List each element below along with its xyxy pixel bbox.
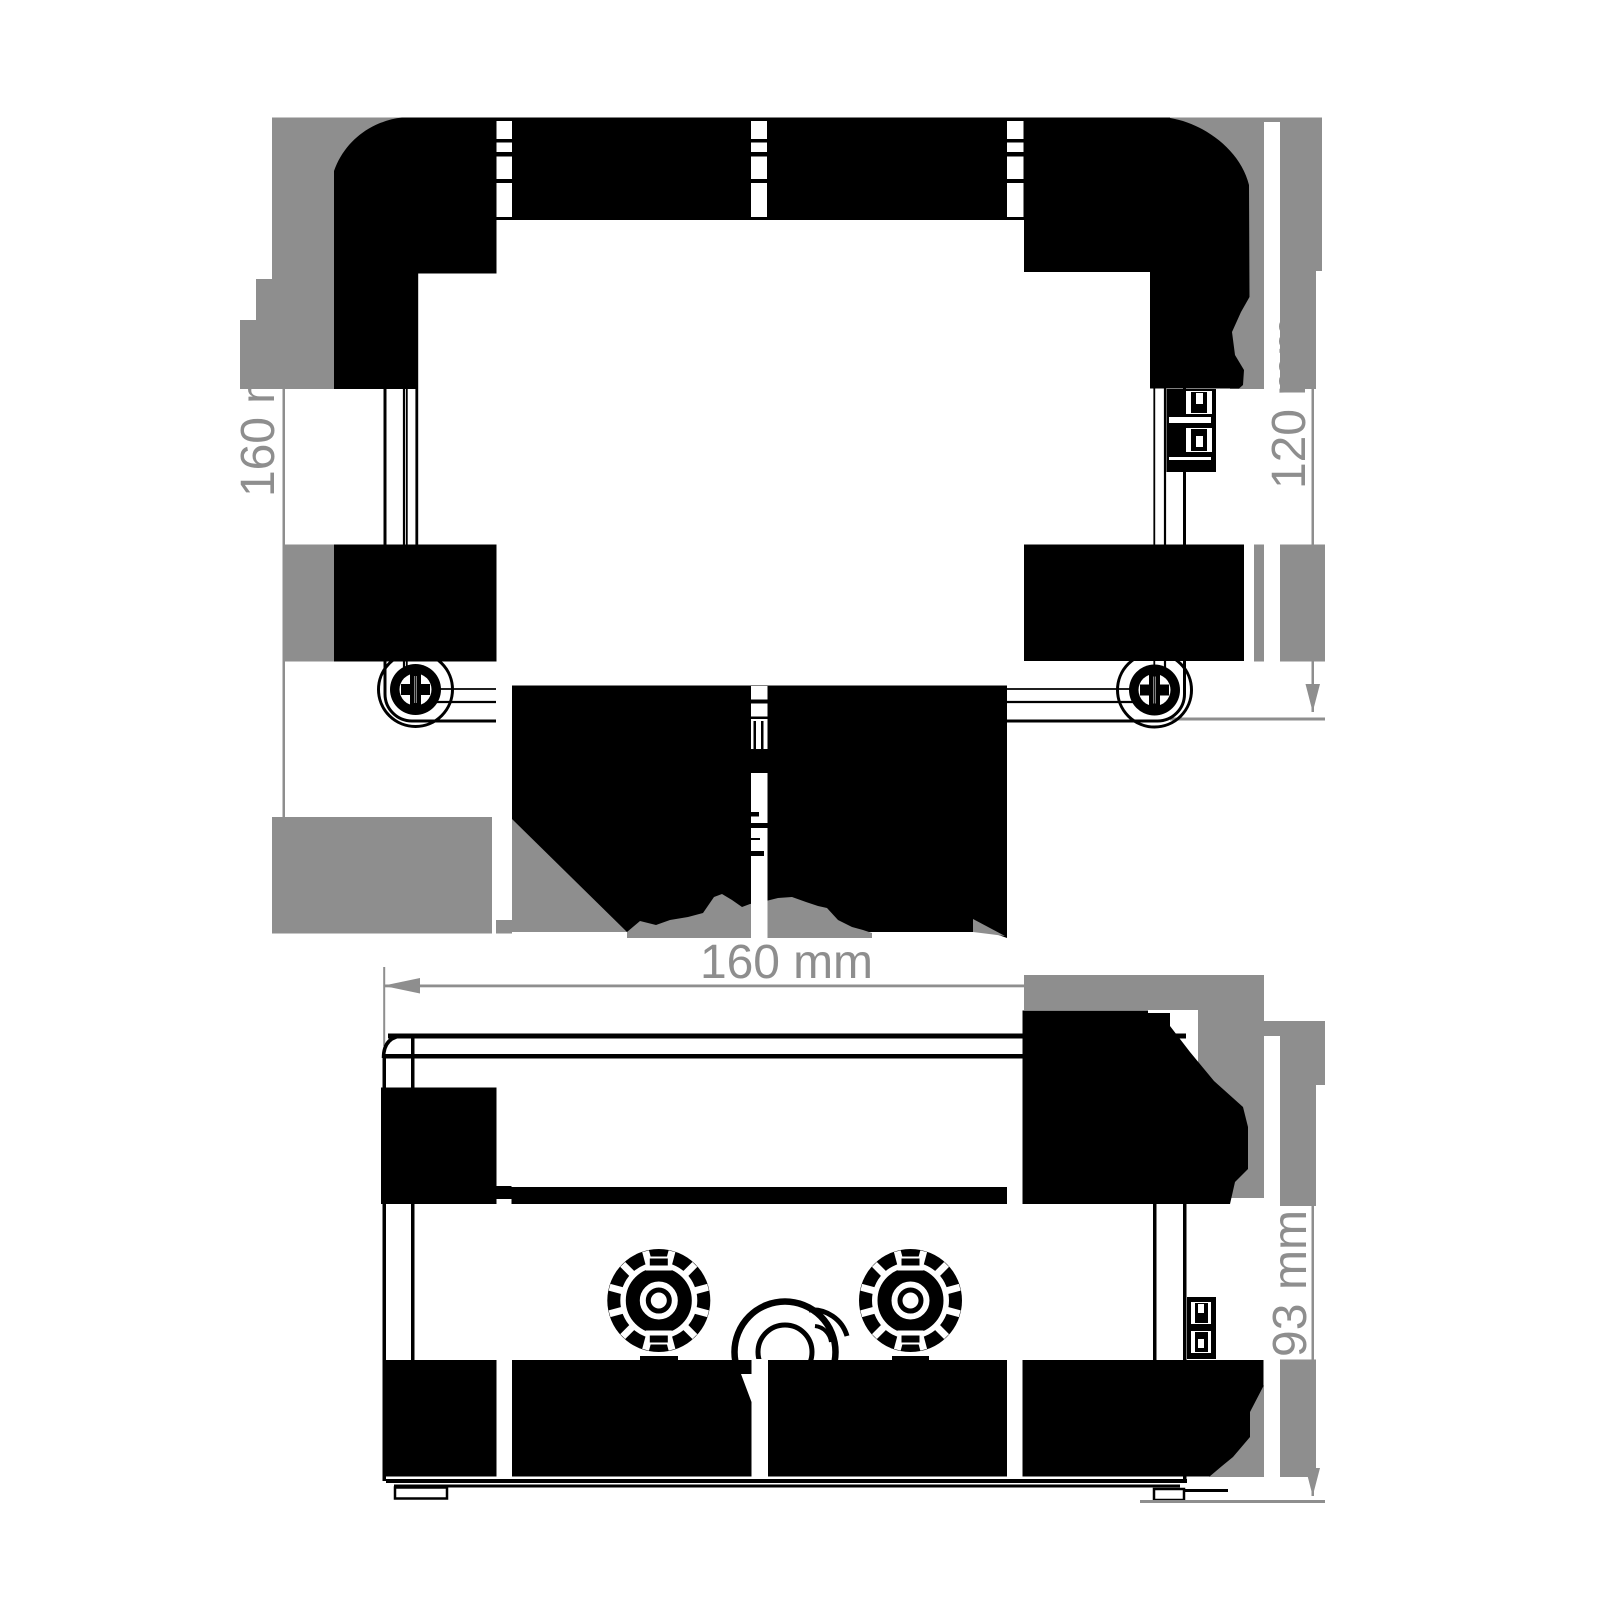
svg-text:93 mm: 93 mm [1264,1210,1317,1357]
svg-text:160 mm: 160 mm [700,936,873,989]
